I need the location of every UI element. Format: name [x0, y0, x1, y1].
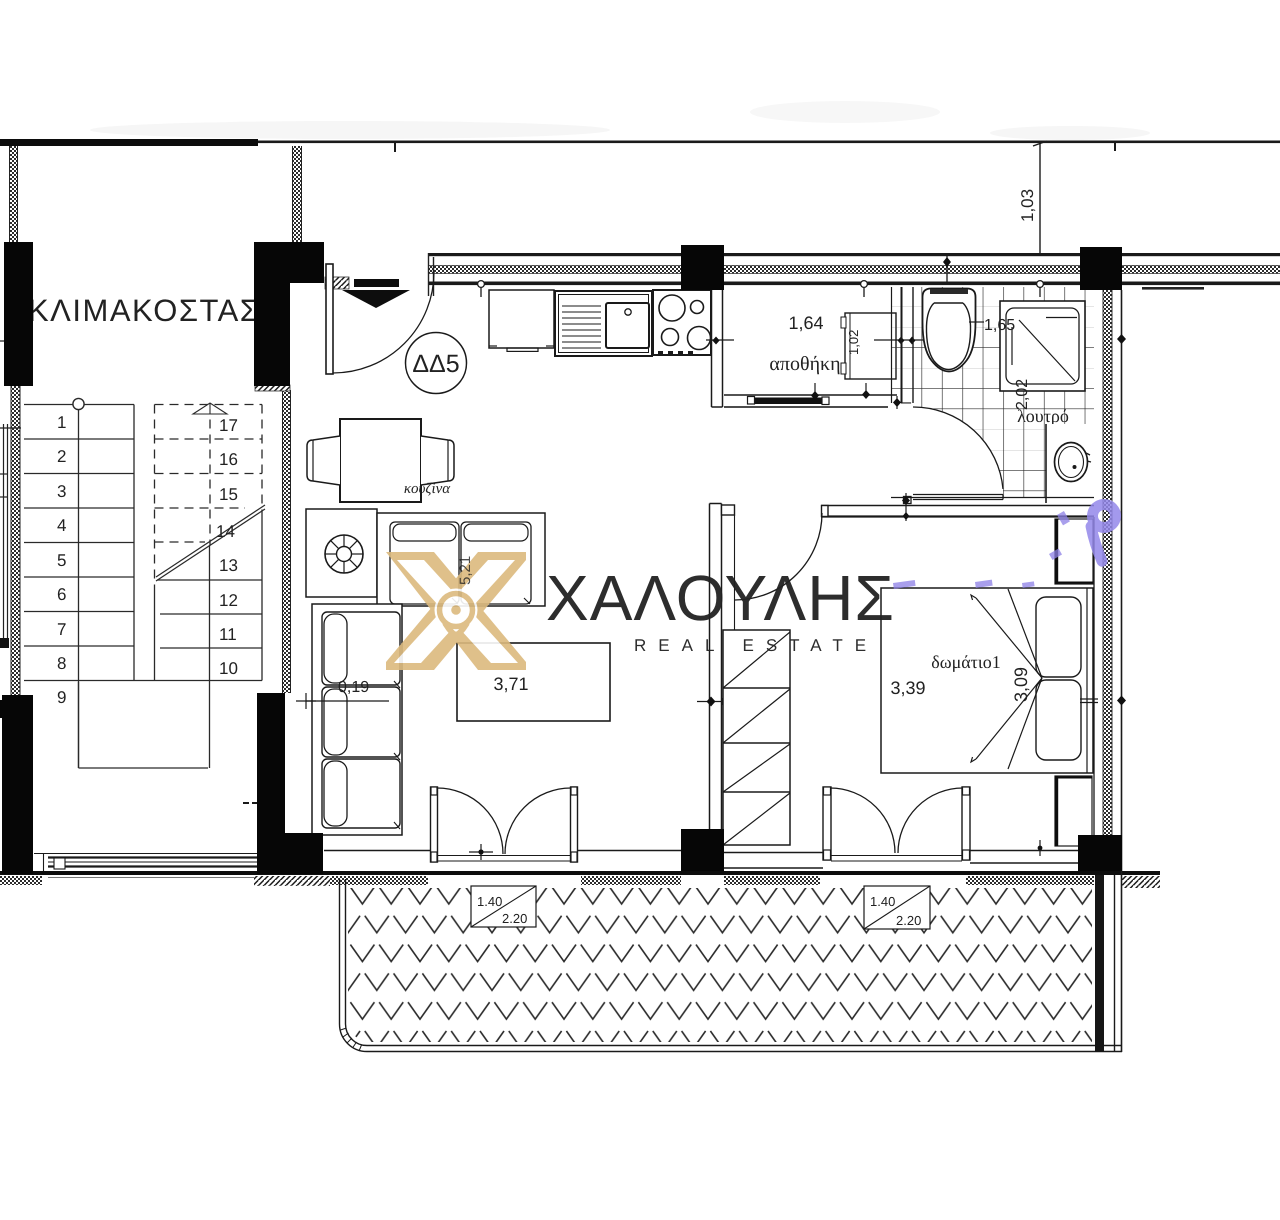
svg-text:16: 16 — [219, 450, 238, 469]
svg-text:2.20: 2.20 — [896, 913, 921, 928]
svg-text:1: 1 — [57, 413, 66, 432]
svg-text:6: 6 — [57, 585, 66, 604]
svg-text:3,71: 3,71 — [493, 674, 528, 694]
svg-text:2.20: 2.20 — [502, 911, 527, 926]
svg-text:13: 13 — [219, 556, 238, 575]
svg-text:αποθήκη: αποθήκη — [769, 353, 840, 375]
svg-text:7: 7 — [57, 620, 66, 639]
svg-text:9: 9 — [57, 688, 66, 707]
svg-text:17: 17 — [219, 416, 238, 435]
svg-text:ΔΔ5: ΔΔ5 — [412, 350, 459, 378]
svg-text:1.40: 1.40 — [477, 894, 502, 909]
svg-text:3: 3 — [57, 482, 66, 501]
svg-text:δωμάτιο1: δωμάτιο1 — [931, 652, 1001, 672]
svg-text:12: 12 — [219, 591, 238, 610]
svg-text:0,19: 0,19 — [338, 679, 369, 696]
svg-text:1,64: 1,64 — [788, 313, 823, 333]
svg-text:14: 14 — [216, 522, 235, 541]
svg-text:1.40: 1.40 — [870, 894, 895, 909]
svg-text:λουτρό: λουτρό — [1017, 406, 1069, 426]
svg-text:2: 2 — [57, 447, 66, 466]
svg-text:5,21: 5,21 — [457, 556, 474, 585]
svg-text:ΚΛΙΜΑΚΟΣΤΑΣ: ΚΛΙΜΑΚΟΣΤΑΣ — [28, 293, 260, 328]
svg-text:11: 11 — [219, 625, 237, 644]
svg-text:5: 5 — [57, 551, 66, 570]
svg-text:4: 4 — [57, 516, 66, 535]
svg-text:1,03: 1,03 — [1018, 189, 1037, 222]
svg-text:15: 15 — [219, 485, 238, 504]
svg-text:8: 8 — [57, 654, 66, 673]
svg-text:ΧΑΛΟΥΛΗΣ: ΧΑΛΟΥΛΗΣ — [546, 562, 895, 634]
svg-text:3,39: 3,39 — [890, 678, 925, 698]
svg-text:1,02: 1,02 — [846, 330, 861, 355]
svg-text:3,09: 3,09 — [1011, 667, 1031, 702]
svg-text:REAL ESTATE: REAL ESTATE — [634, 636, 878, 655]
svg-text:κουζίνα: κουζίνα — [404, 481, 451, 497]
svg-text:10: 10 — [219, 659, 238, 678]
svg-text:1,65: 1,65 — [984, 317, 1015, 334]
